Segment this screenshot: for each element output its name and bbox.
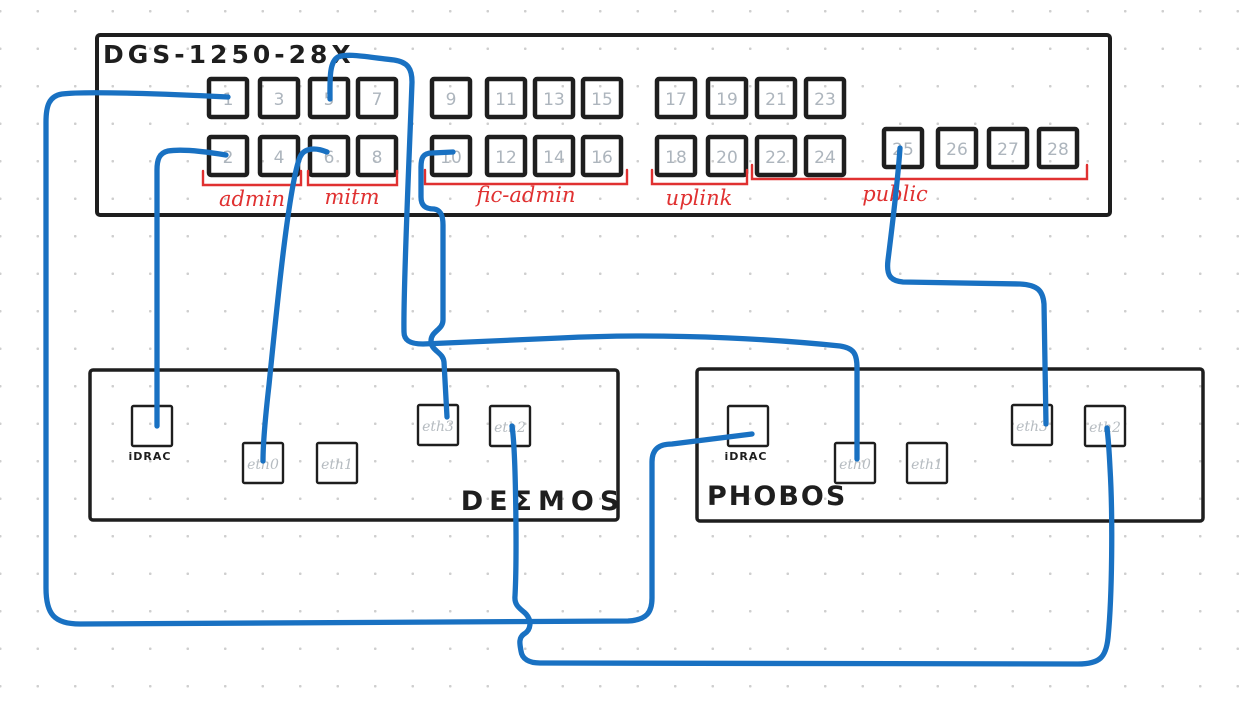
switch-port-16: 16 [583,137,621,175]
switch-port-23-number: 23 [814,90,836,110]
switch-port-28: 28 [1039,129,1077,167]
switch-port-25-number: 25 [892,140,914,160]
switch-port-1-number: 1 [223,90,234,110]
switch-port-24-number: 24 [814,148,836,168]
switch-port-15: 15 [583,79,621,117]
switch-port-19-number: 19 [716,90,738,110]
server-port-demos-idrac: iDRAC [129,406,172,463]
switch-port-18: 18 [657,137,695,175]
switch-port-7-number: 7 [372,90,383,110]
server-port-boxes: iDRACeth0eth1eth3eth2iDRACeth0eth1eth3et… [129,405,1125,483]
switch-port-6: 6 [310,137,348,175]
switch-port-17: 17 [657,79,695,117]
server-phobos-name: PHOBOS [707,481,847,512]
switch-port-12-number: 12 [495,148,517,168]
network-diagram: DGS-1250-28X 123456789101112131415161718… [0,0,1256,703]
cable-switch-port-10-to-de-mos-eth3: switch port 10 → DEΣMOS eth3 [421,152,453,417]
group-label-fic-admin: fic-admin [475,183,576,207]
server-port-demos-idrac-label: iDRAC [129,450,172,463]
server-port-demos-eth3-label: eth3 [422,419,454,435]
switch-port-8: 8 [358,137,396,175]
cable-switch-port-2-to-de-mos-idrac: switch port 2 → DEΣMOS iDRAC [157,150,226,426]
switch-port-7: 7 [358,79,396,117]
switch-port-23: 23 [806,79,844,117]
switch-port-3-number: 3 [274,90,285,110]
switch-port-27: 27 [989,129,1027,167]
switch-title: DGS-1250-28X [103,40,355,69]
switch-port-4-number: 4 [274,148,285,168]
switch-port-11: 11 [487,79,525,117]
switch-port-8-number: 8 [372,148,383,168]
switch-port-16-number: 16 [591,148,613,168]
switch-port-3: 3 [260,79,298,117]
server-port-phobos-eth2: eth2 [1085,406,1125,446]
switch-port-9-number: 9 [446,90,457,110]
server-desmos-name: DEΣMOS [461,486,626,517]
switch-port-14: 14 [535,137,573,175]
server-port-phobos-eth1: eth1 [907,443,947,483]
group-label-mitm: mitm [325,185,380,209]
group-label-admin: admin [219,187,285,211]
switch-port-11-number: 11 [495,90,517,110]
port-group-annotations: adminmitmfic-adminuplinkpublic [203,165,1087,211]
switch-port-13-number: 13 [543,90,565,110]
switch-port-28-number: 28 [1047,140,1069,160]
switch-port-4: 4 [260,137,298,175]
server-port-phobos-idrac-box [728,406,768,446]
switch-port-22-number: 22 [765,148,787,168]
server-port-demos-eth1: eth1 [317,443,357,483]
switch-port-25: 25 [884,129,922,167]
server-port-demos-idrac-box [132,406,172,446]
switch-port-26-number: 26 [946,140,968,160]
cable-de-mos-eth2-to-phobos-eth2: DEΣMOS eth2 → PHOBOS eth2 [512,426,1112,664]
switch-port-15-number: 15 [591,90,613,110]
switch-port-14-number: 14 [543,148,565,168]
switch-port-27-number: 27 [997,140,1019,160]
switch-port-9: 9 [432,79,470,117]
switch-port-22: 22 [757,137,795,175]
cable-switch-port-1-to-phobos-idrac: switch port 1 → PHOBOS iDRAC [46,93,752,624]
whiteboard-canvas: DGS-1250-28X 123456789101112131415161718… [0,0,1256,703]
switch-port-12: 12 [487,137,525,175]
group-label-uplink: uplink [666,186,733,210]
switch-port-24: 24 [806,137,844,175]
server-port-demos-eth3: eth3 [418,405,458,445]
server-port-phobos-idrac-label: iDRAC [725,450,768,463]
server-port-demos-eth1-label: eth1 [321,457,353,473]
switch-port-21-number: 21 [765,90,787,110]
server-port-phobos-eth1-label: eth1 [911,457,943,473]
switch-port-grid: 1234567891011121314151617181920212223242… [209,79,1077,175]
switch-port-19: 19 [708,79,746,117]
switch-port-17-number: 17 [665,90,687,110]
switch-port-18-number: 18 [665,148,687,168]
switch-port-21: 21 [757,79,795,117]
switch-port-2-number: 2 [223,148,234,168]
switch-port-26: 26 [938,129,976,167]
switch-port-10: 10 [432,137,470,175]
switch-port-20: 20 [708,137,746,175]
switch-port-13: 13 [535,79,573,117]
server-port-phobos-eth3-label: eth3 [1016,419,1048,435]
switch-port-20-number: 20 [716,148,738,168]
